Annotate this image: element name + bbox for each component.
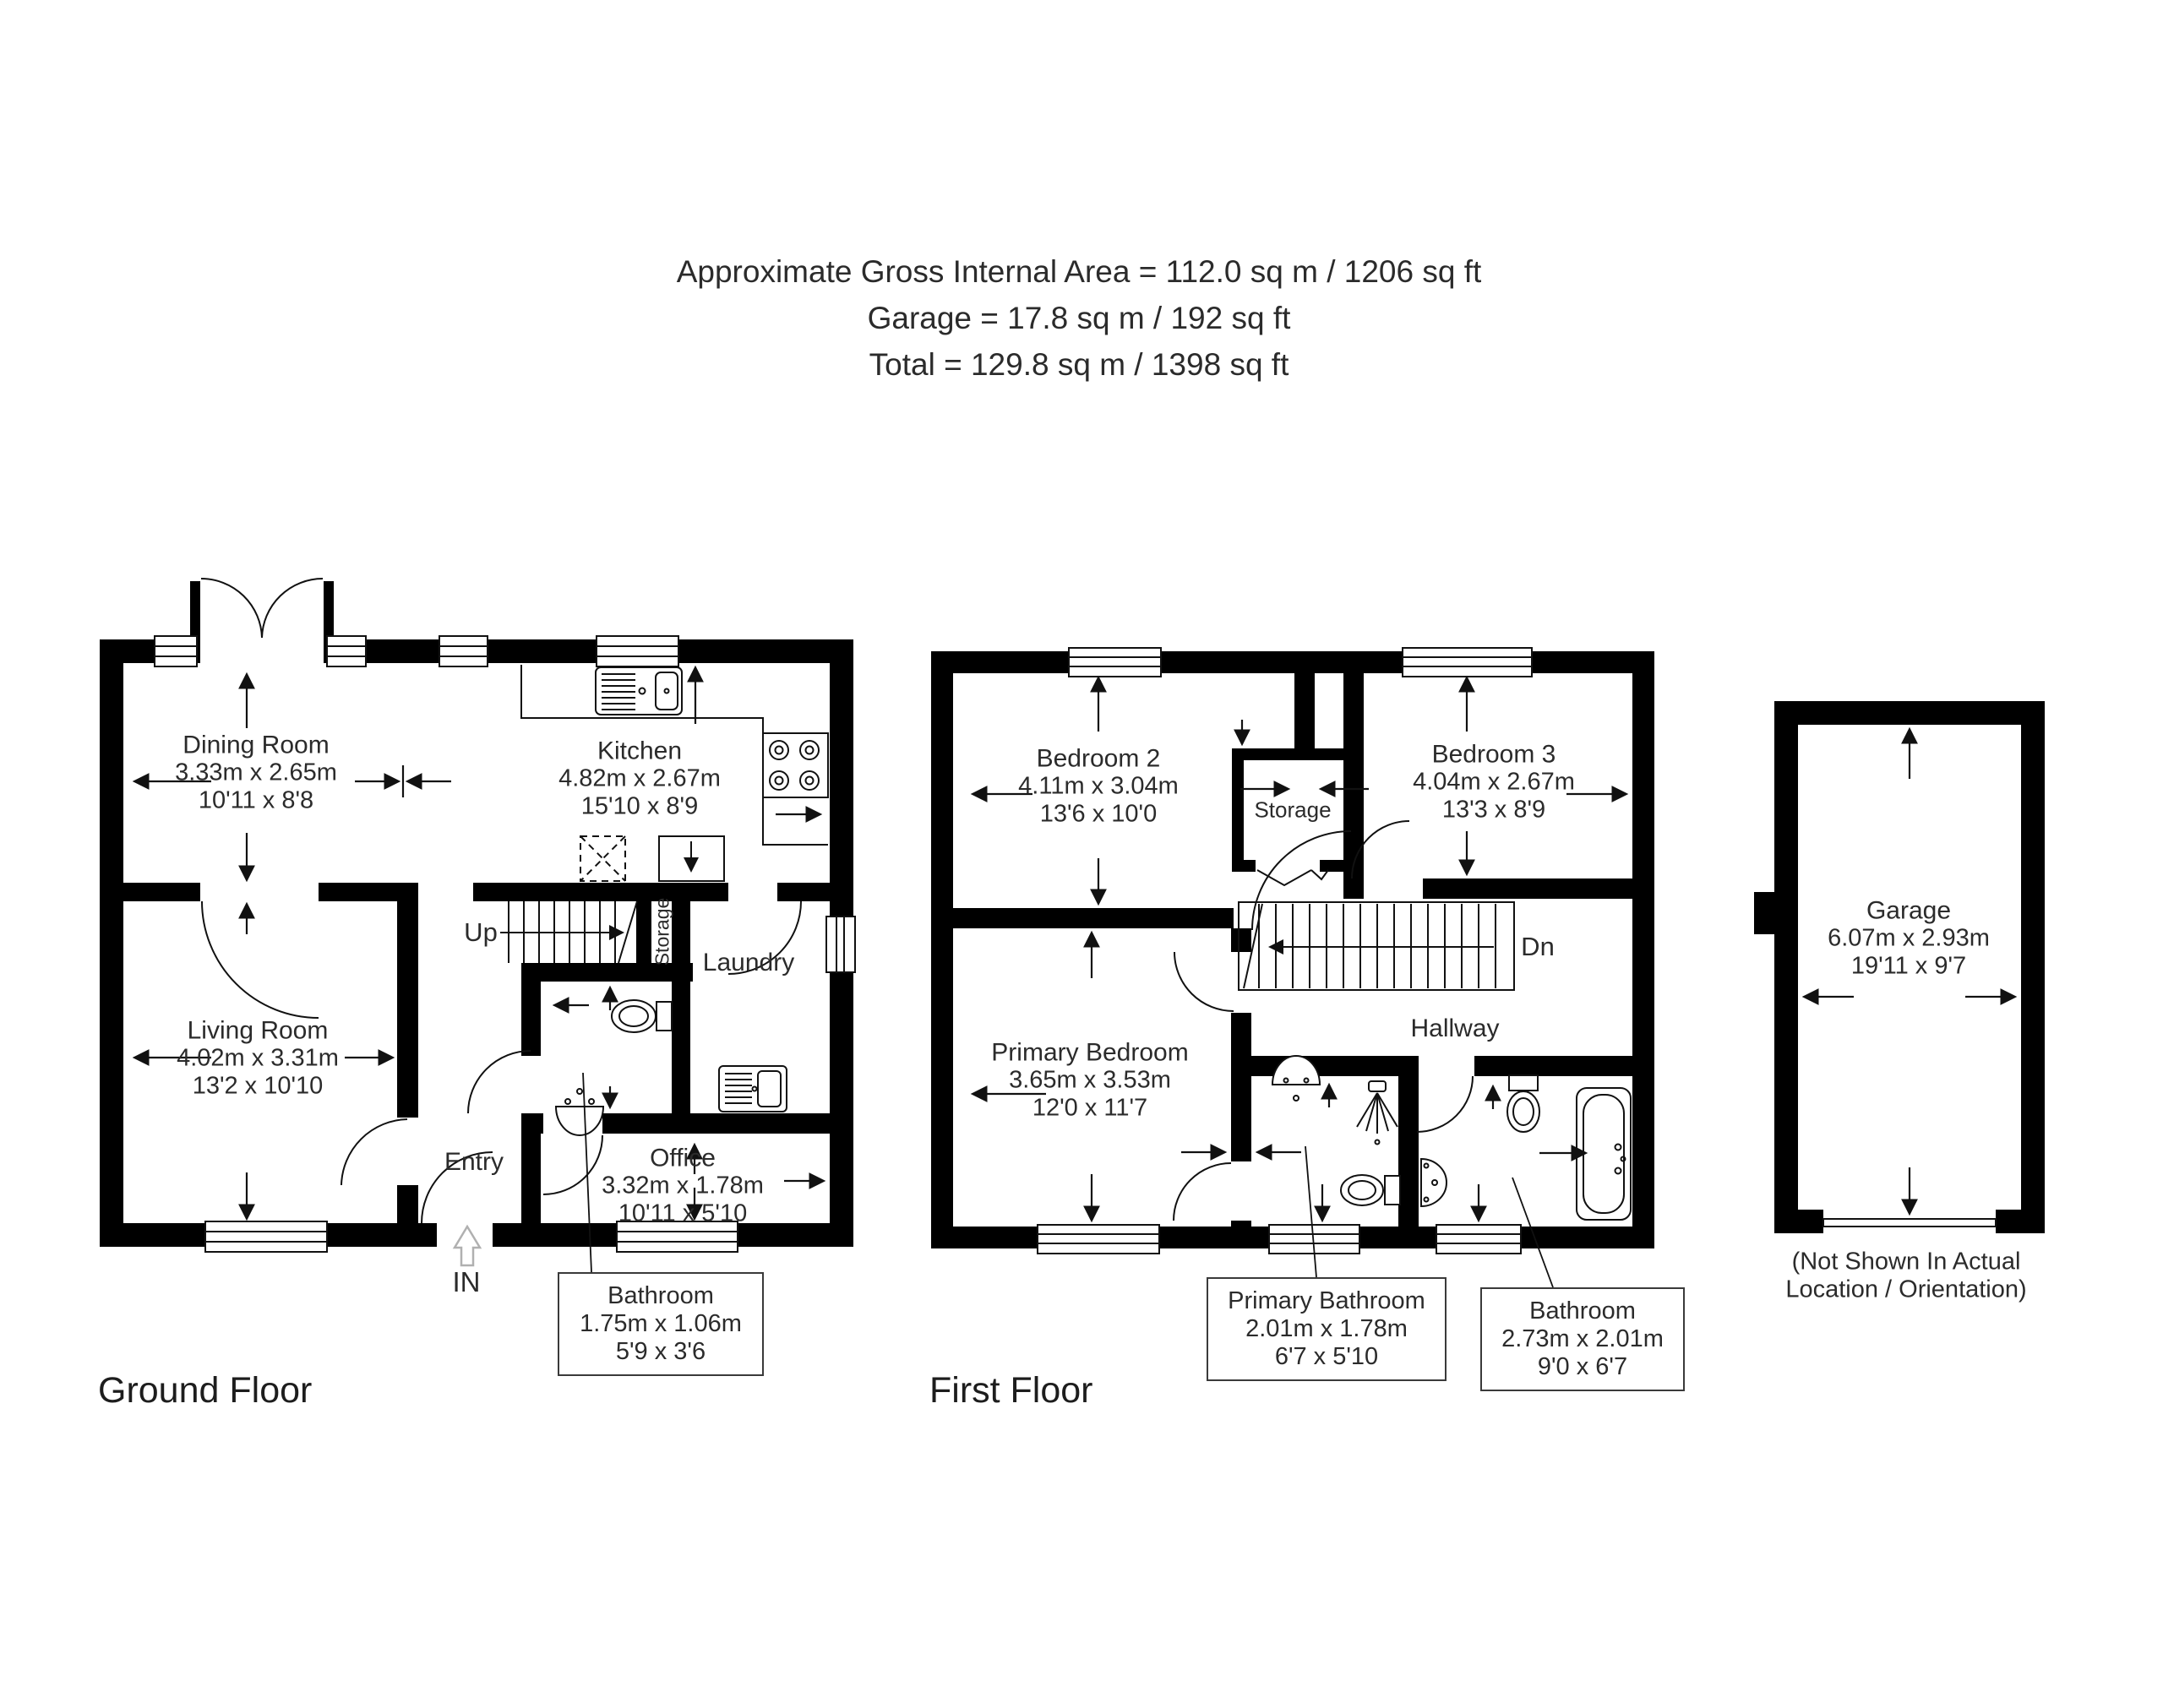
stove-icon (763, 733, 828, 797)
stairs-up-label: Up (464, 917, 498, 948)
garage-note-line1: (Not Shown In Actual (1792, 1248, 2021, 1276)
primary-bedroom-label: Primary Bedroom 3.65m x 3.53m 12'0 x 11'… (991, 1039, 1188, 1123)
entry-arrow-icon (455, 1227, 480, 1265)
bathroom-first-door-icon (1417, 1076, 1473, 1132)
laundry-sink-icon (719, 1066, 787, 1112)
entrance-in-label: IN (453, 1266, 481, 1298)
header-garage-line: Garage = 17.8 sq m / 192 sq ft (868, 301, 1291, 336)
first-floor-title: First Floor (929, 1370, 1093, 1412)
entry-label: Entry (444, 1148, 504, 1177)
stairs-up-icon (500, 901, 637, 963)
storage-first-label: Storage (1254, 797, 1331, 824)
office-label: Office 3.32m x 1.78m 10'11 x 5'10 (602, 1145, 764, 1228)
ground-floor-title: Ground Floor (98, 1370, 312, 1412)
stairs-down-icon (1239, 902, 1514, 990)
floorplan-page: Approximate Gross Internal Area = 112.0 … (0, 0, 2163, 1708)
office-door-icon (543, 1135, 602, 1194)
ground-sink-icon (556, 1089, 603, 1135)
garage-label: Garage 6.07m x 2.93m 19'11 x 9'7 (1828, 897, 1990, 981)
bathroom-toilet-icon (1507, 1075, 1539, 1132)
french-door-left-icon (201, 579, 262, 638)
bathroom-door-icon (468, 1051, 531, 1113)
ground-toilet-icon (612, 1000, 672, 1032)
french-door-right-icon (262, 579, 323, 638)
kitchen-sink-icon (596, 667, 682, 715)
bathroom-first-callout: Bathroom 2.73m x 2.01m 9'0 x 6'7 (1480, 1287, 1685, 1391)
garage-note-line2: Location / Orientation) (1785, 1276, 2026, 1304)
living-room-door-icon (202, 901, 319, 1018)
storage-ground-label: Storage (651, 898, 674, 966)
dining-room-label: Dining Room 3.33m x 2.65m 10'11 x 8'8 (175, 732, 337, 815)
living-room-label: Living Room 4.02m x 3.31m 13'2 x 10'10 (177, 1017, 339, 1101)
primary-bathroom-callout-leader (1305, 1146, 1316, 1277)
header-total-line: Total = 129.8 sq m / 1398 sq ft (869, 347, 1289, 383)
primary-bathroom-callout: Primary Bathroom 2.01m x 1.78m 6'7 x 5'1… (1207, 1277, 1447, 1381)
bedroom2-label: Bedroom 2 4.11m x 3.04m 13'6 x 10'0 (1018, 745, 1179, 829)
shower-icon (1357, 1081, 1398, 1145)
header-area-line: Approximate Gross Internal Area = 112.0 … (677, 254, 1482, 290)
primary-bedroom-door-icon (1174, 952, 1234, 1011)
living-entry-door-icon (341, 1119, 407, 1185)
bathroom-callout: Bathroom 1.75m x 1.06m 5'9 x 3'6 (558, 1272, 764, 1376)
laundry-label: Laundry (703, 949, 794, 977)
first-floor-windows (1038, 648, 1532, 1254)
garage-door-icon (1823, 1219, 1996, 1227)
primary-bathroom-door-icon (1174, 1163, 1231, 1221)
bathroom-sink-icon (1421, 1159, 1447, 1206)
bedroom2-door-icon (1252, 831, 1351, 930)
primary-toilet-icon (1341, 1175, 1400, 1205)
bedroom3-label: Bedroom 3 4.04m x 2.67m 13'3 x 8'9 (1413, 741, 1575, 824)
hallway-label: Hallway (1410, 1014, 1499, 1043)
kitchen-label: Kitchen 4.82m x 2.67m 15'10 x 8'9 (558, 737, 721, 821)
stairs-down-label: Dn (1521, 932, 1555, 962)
